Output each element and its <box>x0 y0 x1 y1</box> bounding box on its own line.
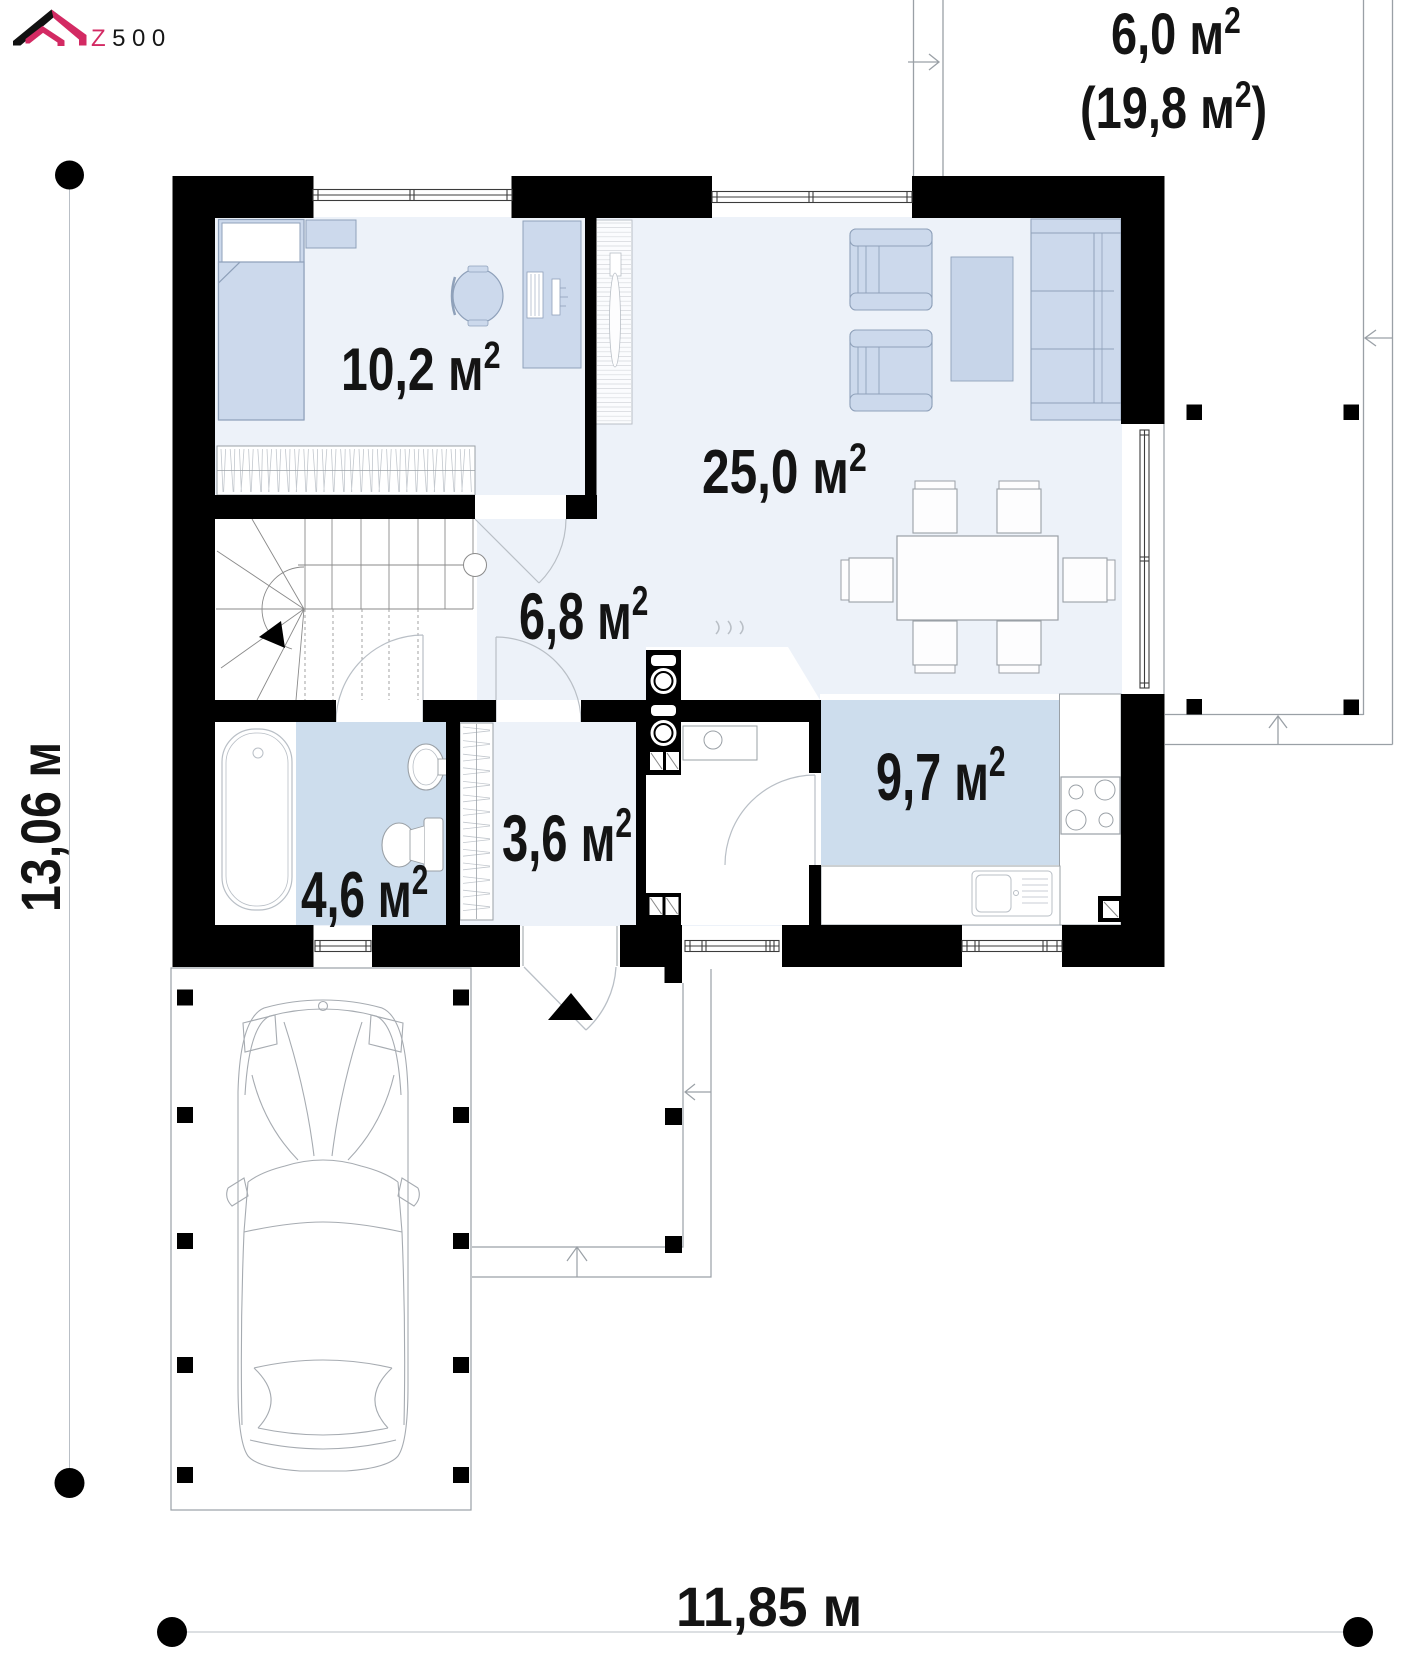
svg-text:9,7 м2: 9,7 м2 <box>876 737 1006 815</box>
svg-text:11,85 м: 11,85 м <box>676 1575 862 1638</box>
svg-text:4,6 м2: 4,6 м2 <box>301 856 428 931</box>
svg-text:6,8 м2: 6,8 м2 <box>519 577 648 654</box>
svg-text:6,0 м2: 6,0 м2 <box>1111 1 1241 67</box>
svg-text:25,0 м2: 25,0 м2 <box>702 435 867 507</box>
svg-text:3,6 м2: 3,6 м2 <box>502 799 632 876</box>
svg-text:Z500: Z500 <box>91 25 172 52</box>
svg-text:13,06 м: 13,06 м <box>11 742 73 912</box>
svg-text:10,2 м2: 10,2 м2 <box>341 335 501 403</box>
